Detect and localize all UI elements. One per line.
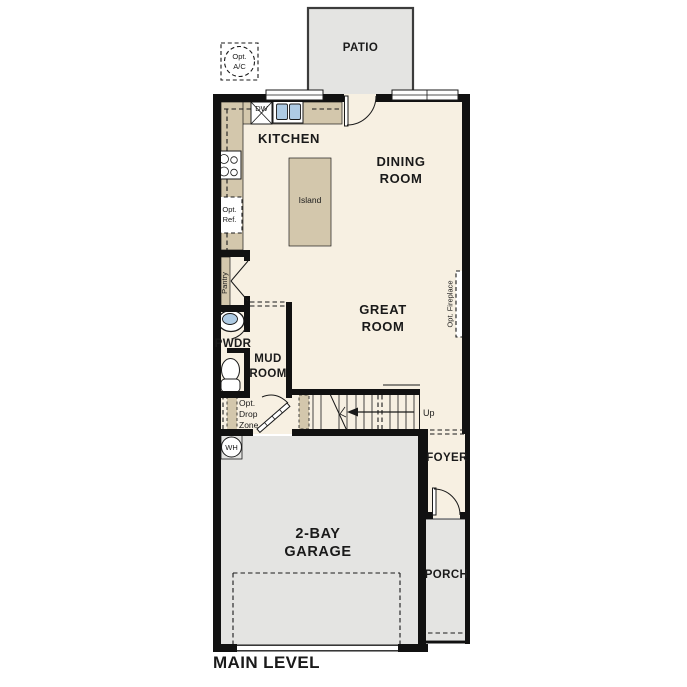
- wall-garage-bottom-right: [398, 644, 428, 652]
- wall-right-upper: [462, 102, 470, 434]
- front-door-leaf: [433, 488, 437, 515]
- powder-sink: [218, 311, 244, 332]
- mudroom-label-1: MUD: [254, 353, 281, 365]
- great-label-2: ROOM: [362, 319, 405, 334]
- drop-zone-label-3: Zone: [239, 420, 259, 430]
- opt-ac-label-2: A/C: [233, 62, 246, 71]
- main-floor: [221, 102, 462, 434]
- opt-ref-label-2: Ref.: [223, 215, 237, 224]
- opt-ref-label-1: Opt.: [222, 205, 236, 214]
- dishwasher-label: DW: [255, 104, 268, 113]
- wall-stair-top: [286, 389, 420, 395]
- plan-title: MAIN LEVEL: [213, 653, 320, 672]
- drop-zone-label-2: Drop: [239, 409, 258, 419]
- patio-label: PATIO: [343, 42, 378, 54]
- sink-basin-left: [277, 104, 288, 120]
- wall-pantry-bottom: [213, 305, 250, 312]
- water-heater-label: WH: [225, 443, 238, 452]
- toilet: [221, 359, 240, 393]
- sink-basin-right: [290, 104, 301, 120]
- wall-powder-bottom: [213, 391, 250, 398]
- dining-label-1: DINING: [376, 154, 425, 169]
- stair-side-wall: [299, 395, 309, 429]
- garage-overhead-door: [237, 645, 398, 652]
- stairs-up-label: Up: [423, 408, 435, 418]
- kitchen-sink: [273, 101, 303, 123]
- wall-garage-top-right: [292, 429, 428, 436]
- opt-ac-label-1: Opt.: [232, 52, 246, 61]
- garage-label-2: GARAGE: [284, 544, 351, 560]
- wall-entry-left: [425, 512, 433, 519]
- toilet-bowl: [222, 359, 240, 382]
- wall-garage-bottom-left: [213, 644, 237, 652]
- toilet-tank: [221, 379, 240, 392]
- wall-pantry-jamb: [244, 250, 250, 261]
- kitchen-label: KITCHEN: [258, 131, 320, 146]
- porch-label: PORCH: [425, 569, 469, 581]
- garage-label-1: 2-BAY: [295, 526, 340, 542]
- island-label: Island: [299, 195, 322, 205]
- patio-door-opening: [344, 94, 376, 102]
- great-label-1: GREAT: [359, 302, 407, 317]
- wall-garage-foyer: [418, 429, 428, 518]
- drop-zone-label-1: Opt.: [239, 398, 255, 408]
- dining-label-2: ROOM: [380, 171, 423, 186]
- drop-zone-bench: [227, 395, 237, 431]
- porch-edge: [425, 641, 470, 644]
- wall-garage-top-left: [213, 429, 253, 436]
- mudroom-label-2: ROOM: [249, 368, 286, 380]
- patio-door-leaf: [345, 96, 349, 126]
- opt-fireplace-label: Opt. Fireplace: [446, 280, 455, 327]
- powder-label: PWDR: [215, 338, 252, 350]
- wall-left: [213, 94, 221, 652]
- wall-entry-right: [460, 512, 470, 519]
- wall-mudroom-right: [286, 302, 292, 398]
- vanity-basin: [223, 314, 238, 325]
- floor-plan-page: PATIO Opt. A/C DW KITCHEN DINING ROOM Is…: [0, 0, 687, 687]
- pantry-label: Pantry: [220, 272, 229, 294]
- foyer-label: FOYER: [426, 452, 468, 464]
- wall-garage-porch: [418, 512, 426, 652]
- floor-plan-drawing: PATIO Opt. A/C DW KITCHEN DINING ROOM Is…: [0, 0, 687, 687]
- wall-right-lower: [465, 434, 470, 644]
